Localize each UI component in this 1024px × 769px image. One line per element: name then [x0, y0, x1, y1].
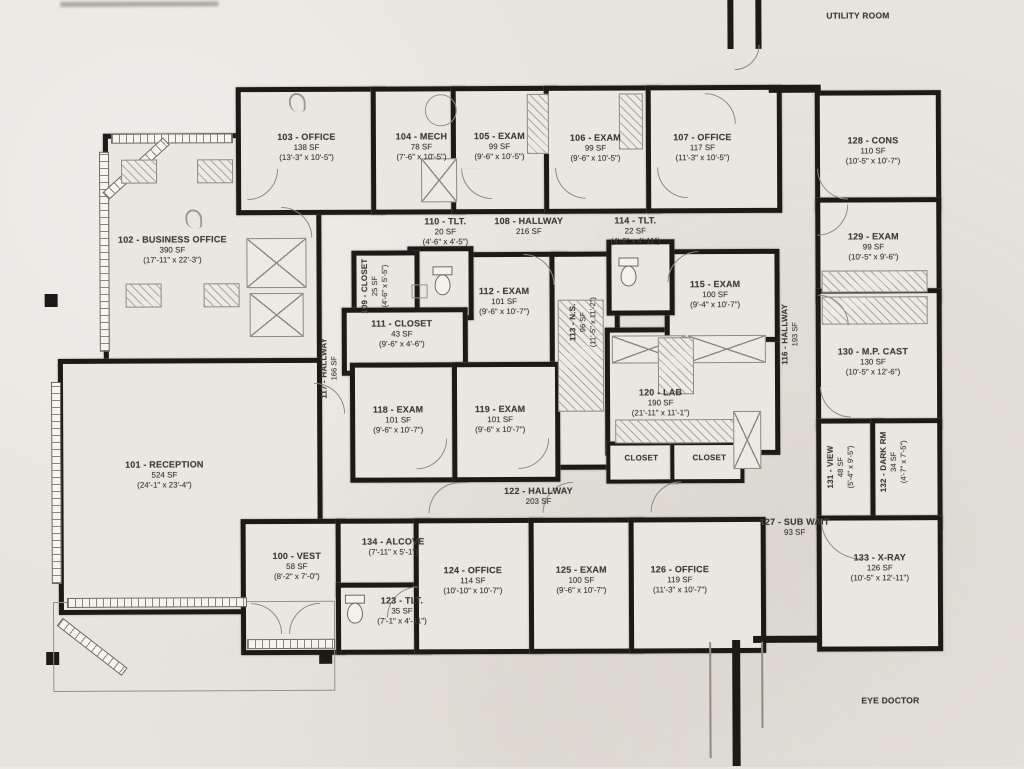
room-label-122: 122 - HALLWAY 203 SF	[482, 486, 594, 507]
room-sf: 93 SF	[749, 528, 841, 538]
room-sf: 48 SF	[836, 422, 846, 512]
room-dims: (10'-5" x 9'-6")	[819, 252, 927, 262]
room-sf: 114 SF	[419, 576, 527, 586]
room-sf: 524 SF	[110, 470, 218, 480]
room-label-closet-right: CLOSET	[678, 452, 740, 463]
column-marker	[45, 294, 58, 307]
scan-artifact	[60, 1, 218, 7]
room-sf: 138 SF	[249, 143, 364, 154]
room-sf: 100 SF	[529, 575, 634, 585]
window-sill	[67, 597, 247, 608]
room-label-111: 111 - CLOSET 43 SF (9'-6" x 4'-6")	[352, 318, 452, 349]
room-label-129: 129 - EXAM 99 SF (10'-5" x 9'-6")	[819, 231, 927, 262]
room-dims: (11'-5" x 11'-2")	[588, 272, 598, 372]
lab-counter	[615, 419, 735, 444]
room-name: 112 - EXAM	[452, 286, 557, 297]
sketch-mark	[185, 209, 202, 228]
room-label-131: 131 - VIEW 48 SF (5'-4" x 9'-5")	[825, 422, 856, 512]
room-name: 100 - VEST	[251, 551, 343, 562]
room-name: 120 - LAB	[608, 387, 713, 398]
desk	[197, 159, 233, 183]
room-name: 113 - N.S.	[567, 272, 578, 372]
room-name: 106 - EXAM	[548, 132, 643, 143]
casework	[246, 238, 306, 288]
room-name: 126 - OFFICE	[626, 564, 734, 575]
room-name: 111 - CLOSET	[352, 318, 452, 329]
room-label-126: 126 - OFFICE 119 SF (11'-3" x 10'-7")	[626, 564, 734, 595]
sketch-mark	[289, 93, 306, 112]
room-dims: (9'-4" x 10'-7")	[663, 300, 768, 310]
utility-corridor-wall	[755, 0, 761, 49]
mech-equipment-circle	[425, 94, 457, 126]
desk	[126, 284, 162, 308]
room-label-116: 116 - HALLWAY 193 SF	[779, 294, 800, 374]
room-name: 101 - RECEPTION	[110, 459, 218, 470]
room-name: 128 - CONS	[819, 135, 927, 146]
window-sill	[51, 382, 62, 584]
room-label-127: 127 - SUB WAIT 93 SF	[749, 517, 841, 538]
room-label-100: 100 - VEST 58 SF (8'-2" x 7'-0")	[251, 551, 343, 582]
annotation-text: EYE DOCTOR	[861, 695, 956, 706]
toilet-icon	[620, 265, 636, 286]
room-dims: (13'-3" x 10'-5")	[249, 153, 364, 164]
room-label-113: 113 - N.S. 96 SF (11'-5" x 11'-2")	[567, 272, 598, 372]
room-label-102: 102 - BUSINESS OFFICE 390 SF (17'-11" x …	[111, 234, 233, 266]
room-sf: 117 SF	[645, 143, 760, 154]
room-dims: (11'-3" x 10'-7")	[626, 585, 734, 595]
room-dims: (9'-6" x 10'-7")	[452, 307, 557, 317]
room-sf: 193 SF	[790, 294, 800, 374]
door-swing-arc	[650, 481, 681, 512]
room-dims: (9'-6" x 10'-7")	[348, 425, 448, 435]
room-dims: (21'-11" x 11'-1")	[608, 408, 713, 418]
room-name: 125 - EXAM	[529, 564, 634, 575]
room-sf: 96 SF	[578, 272, 588, 372]
desk	[204, 283, 240, 307]
room-dims: (7'-1" x 4'-11")	[351, 616, 453, 626]
room-sf: 100 SF	[663, 290, 768, 300]
annotation-text: UTILITY ROOM	[826, 10, 926, 21]
room-name: 122 - HALLWAY	[482, 486, 594, 497]
room-sf: 101 SF	[452, 297, 557, 307]
room-dims: (9'-6" x 10'-7")	[529, 585, 634, 595]
room-name: 117 - HALLWAY	[318, 328, 329, 408]
window-sill	[247, 639, 335, 649]
room-label-120: 120 - LAB 190 SF (21'-11" x 11'-1")	[608, 387, 713, 418]
room-dims: (9'-6" x 10'-7")	[450, 425, 550, 435]
exit-corridor-wall	[732, 640, 741, 766]
room-name: CLOSET	[610, 452, 672, 463]
exit-corridor-wall	[761, 642, 763, 728]
scanned-page: { "colors": { "paper": "#e7e4de", "wall"…	[0, 0, 1024, 767]
room-dims: (10'-5" x 12'-6")	[818, 367, 928, 377]
door-swing-arc	[428, 482, 459, 513]
window-sill	[99, 152, 110, 352]
room-label-115: 115 - EXAM 100 SF (9'-4" x 10'-7")	[663, 279, 768, 310]
room-label-closet-left: CLOSET	[610, 452, 672, 463]
room-name: 115 - EXAM	[663, 279, 768, 290]
room-dims: (8'-2" x 7'-0")	[251, 572, 343, 582]
desk	[121, 160, 157, 184]
room-sf: 58 SF	[251, 562, 343, 572]
room-name: 130 - M.P. CAST	[818, 346, 928, 357]
room-dims: (9'-6" x 10'-5")	[548, 153, 643, 163]
window-sill	[111, 133, 233, 144]
room-sf: 34 SF	[889, 417, 899, 507]
room-name: 129 - EXAM	[819, 231, 927, 242]
room-dims: (24'-1" x 23'-4")	[110, 480, 218, 490]
room-name: 127 - SUB WAIT	[749, 517, 841, 528]
room-name: 134 - ALCOVE	[341, 536, 446, 547]
room-name: 116 - HALLWAY	[779, 294, 790, 374]
lab-counter	[688, 335, 766, 363]
room-sf: 99 SF	[819, 242, 927, 252]
room-sf: 190 SF	[608, 398, 713, 408]
utility-corridor-wall	[727, 0, 733, 49]
room-name: 132 - DARK RM	[878, 417, 889, 507]
eye-doctor-label: EYE DOCTOR	[861, 695, 956, 706]
room-sf: 99 SF	[452, 142, 547, 152]
wall-segment	[753, 636, 821, 643]
room-dims: (4'-7" x 7'-5")	[899, 417, 909, 507]
floor-plan: 103 - OFFICE 138 SF (13'-3" x 10'-5") 10…	[0, 0, 1024, 769]
room-sf: 99 SF	[548, 143, 643, 153]
room-sf: 101 SF	[348, 415, 448, 425]
room-name: CLOSET	[678, 452, 740, 463]
room-dims: (10'-5" x 10'-7")	[819, 156, 927, 166]
room-label-130: 130 - M.P. CAST 130 SF (10'-5" x 12'-6")	[818, 346, 928, 377]
room-name: 123 - TLT.	[351, 595, 453, 606]
room-name: 124 - OFFICE	[419, 565, 527, 576]
room-name: 131 - VIEW	[825, 422, 836, 512]
room-label-124: 124 - OFFICE 114 SF (10'-10" x 10'-7")	[419, 565, 527, 596]
room-sf: 110 SF	[819, 146, 927, 156]
room-label-103: 103 - OFFICE 138 SF (13'-3" x 10'-5")	[249, 132, 364, 164]
room-name: 119 - EXAM	[450, 404, 550, 415]
room-name: 107 - OFFICE	[645, 132, 760, 144]
room-label-134: 134 - ALCOVE (7'-11" x 5'-1")	[341, 536, 446, 557]
room-dims: (5'-4" x 9'-5")	[846, 422, 856, 512]
room-dims: (11'-3" x 10'-5")	[645, 153, 760, 164]
room-name: 103 - OFFICE	[249, 132, 364, 144]
room-label-133: 133 - X-RAY 126 SF (10'-5" x 12'-11")	[829, 552, 931, 583]
room-label-125: 125 - EXAM 100 SF (9'-6" x 10'-7")	[529, 564, 634, 595]
toilet-icon	[435, 274, 451, 295]
room-dims: (7'-11" x 5'-1")	[341, 547, 446, 557]
room-sf: 35 SF	[351, 606, 453, 616]
room-dims: (9'-6" x 10'-5")	[452, 152, 547, 162]
room-name: 114 - TLT.	[591, 215, 679, 226]
wall-segment	[769, 85, 821, 93]
room-sf: 101 SF	[450, 415, 550, 425]
room-name: 133 - X-RAY	[829, 552, 931, 563]
casework	[822, 270, 928, 292]
room-label-118: 118 - EXAM 101 SF (9'-6" x 10'-7")	[348, 404, 448, 435]
room-sf: 390 SF	[111, 245, 233, 256]
room-dims: (10'-5" x 12'-11")	[829, 573, 931, 583]
room-label-105: 105 - EXAM 99 SF (9'-6" x 10'-5")	[452, 131, 547, 162]
room-label-117: 117 - HALLWAY 166 SF	[318, 328, 339, 408]
door-swing-arc	[735, 45, 760, 70]
room-name: 105 - EXAM	[452, 131, 547, 142]
room-dims: (4'-6" x 4'-11")	[591, 236, 679, 246]
room-sf: 166 SF	[329, 328, 339, 408]
room-label-119: 119 - EXAM 101 SF (9'-6" x 10'-7")	[450, 404, 550, 435]
exit-corridor-wall	[709, 642, 712, 758]
room-label-112: 112 - EXAM 101 SF (9'-6" x 10'-7")	[452, 286, 557, 317]
room-label-114: 114 - TLT. 22 SF (4'-6" x 4'-11")	[591, 215, 679, 246]
room-dims: (10'-10" x 10'-7")	[419, 586, 527, 596]
room-sf: 43 SF	[352, 329, 452, 339]
room-label-132: 132 - DARK RM 34 SF (4'-7" x 7'-5")	[878, 417, 909, 507]
room-name: 108 - HALLWAY	[471, 216, 586, 228]
casework	[658, 337, 694, 394]
room-dims: (17'-11" x 22'-3")	[111, 255, 233, 266]
mech-equipment	[421, 158, 457, 202]
room-sf: 130 SF	[818, 357, 928, 367]
room-label-128: 128 - CONS 110 SF (10'-5" x 10'-7")	[819, 135, 927, 166]
room-label-108: 108 - HALLWAY 216 SF	[471, 216, 586, 238]
room-sf: 203 SF	[482, 497, 594, 507]
room-dims: (9'-6" x 4'-6")	[352, 339, 452, 349]
room-sf: 126 SF	[829, 563, 931, 573]
room-label-106: 106 - EXAM 99 SF (9'-6" x 10'-5")	[548, 132, 643, 163]
utility-room-label: UTILITY ROOM	[826, 10, 926, 21]
room-sf: 22 SF	[591, 226, 679, 236]
room-name: 118 - EXAM	[348, 404, 448, 415]
casework	[250, 293, 304, 337]
room-label-101: 101 - RECEPTION 524 SF (24'-1" x 23'-4")	[110, 459, 218, 490]
room-sf: 119 SF	[626, 575, 734, 585]
room-label-123: 123 - TLT. 35 SF (7'-1" x 4'-11")	[351, 595, 453, 626]
sink-icon	[412, 284, 428, 298]
room-label-107: 107 - OFFICE 117 SF (11'-3" x 10'-5")	[645, 132, 760, 164]
room-sf: 216 SF	[471, 227, 586, 238]
room-name: 102 - BUSINESS OFFICE	[111, 234, 233, 246]
room-dims: (4'-6" x 4'-5")	[404, 237, 486, 247]
